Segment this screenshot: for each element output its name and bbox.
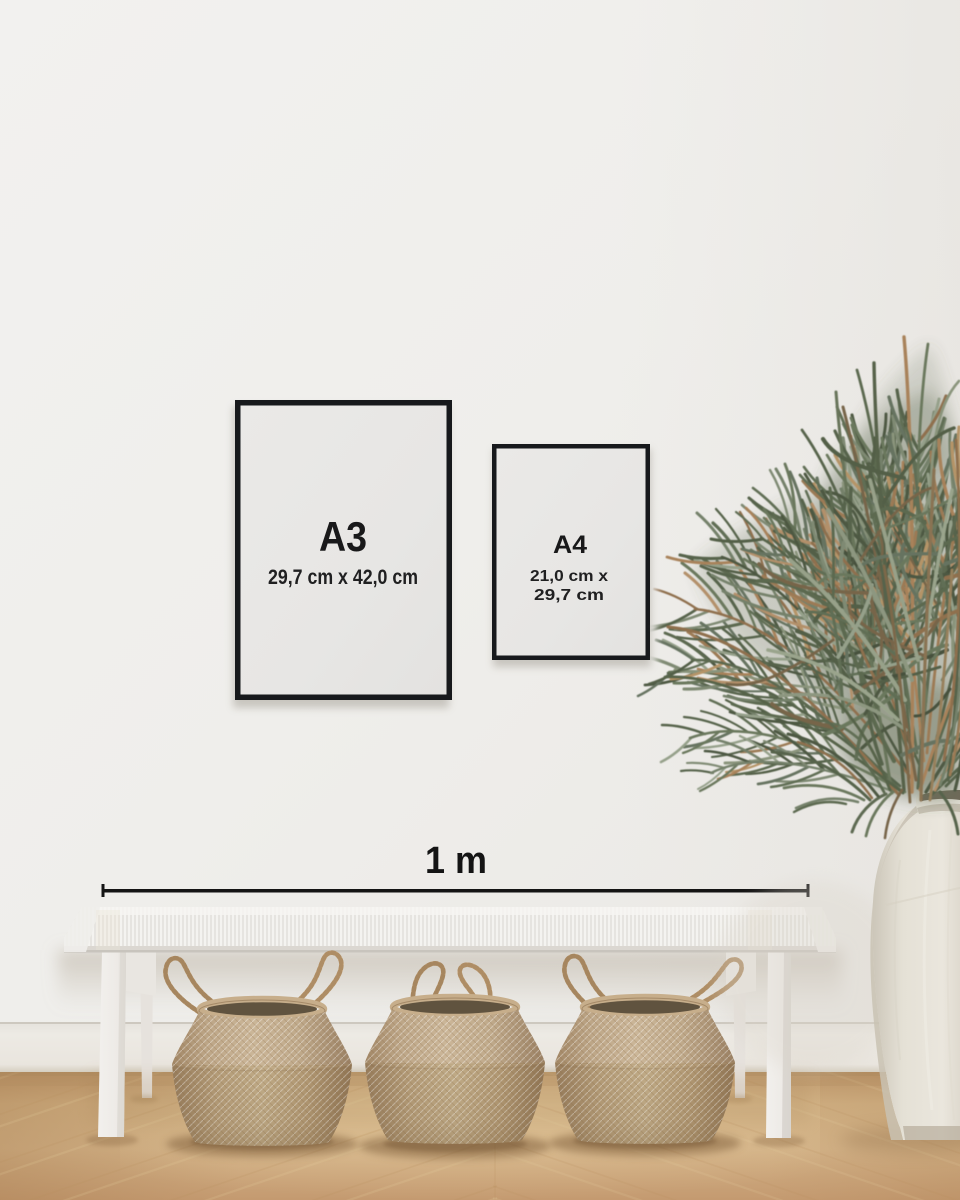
svg-text:29,7 cm: 29,7 cm: [534, 587, 604, 604]
svg-text:A3: A3: [319, 513, 367, 560]
svg-text:29,7 cm x 42,0 cm: 29,7 cm x 42,0 cm: [268, 566, 418, 589]
svg-text:21,0 cm x: 21,0 cm x: [530, 568, 608, 585]
svg-text:A4: A4: [553, 531, 587, 559]
svg-text:1 m: 1 m: [425, 840, 487, 882]
